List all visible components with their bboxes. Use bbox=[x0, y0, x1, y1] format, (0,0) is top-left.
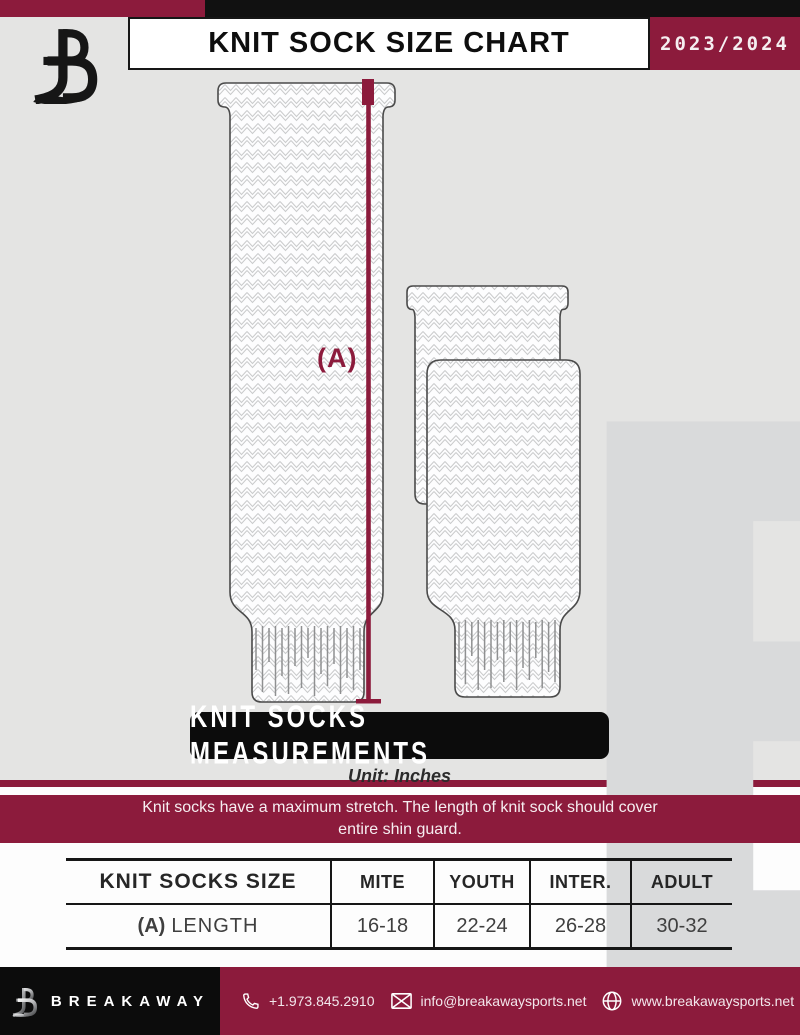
size-chart-page: KNIT SOCK SIZE CHART 2023/2024 B bbox=[0, 0, 800, 1035]
season-badge: 2023/2024 bbox=[650, 17, 800, 70]
length-value-youth: 22-24 bbox=[433, 905, 529, 947]
breakaway-logo-icon bbox=[26, 22, 106, 104]
size-table-header-adult: ADULT bbox=[630, 861, 732, 903]
top-accent-strip-black bbox=[205, 0, 800, 17]
length-row-name: LENGTH bbox=[171, 915, 258, 938]
sock-diagram: (A) bbox=[170, 70, 610, 715]
sock-front-intermediate bbox=[427, 360, 580, 697]
length-value-adult: 30-32 bbox=[630, 905, 732, 947]
phone-icon bbox=[240, 991, 261, 1012]
length-label-a: (A) bbox=[317, 343, 357, 373]
size-table-header-row: KNIT SOCKS SIZE MITE YOUTH INTER. ADULT bbox=[66, 861, 732, 905]
footer-email-address: info@breakawaysports.net bbox=[421, 993, 587, 1009]
page-title: KNIT SOCK SIZE CHART bbox=[208, 27, 570, 60]
size-table-length-row: (A) LENGTH 16-18 22-24 26-28 30-32 bbox=[66, 905, 732, 947]
length-row-label: (A) LENGTH bbox=[66, 905, 330, 947]
season-label: 2023/2024 bbox=[660, 33, 790, 55]
footer-contact-bar: +1.973.845.2910 info@breakawaysports.net… bbox=[220, 967, 800, 1035]
footer-phone: +1.973.845.2910 bbox=[240, 991, 375, 1012]
envelope-icon bbox=[390, 991, 413, 1011]
size-table-header-mite: MITE bbox=[330, 861, 433, 903]
size-table-header-youth: YOUTH bbox=[433, 861, 529, 903]
breakaway-footer-logo-icon bbox=[10, 984, 40, 1018]
footer-website: www.breakawaysports.net bbox=[601, 990, 794, 1012]
stretch-notice-line2: entire shin guard. bbox=[338, 819, 462, 841]
stretch-notice-band: Knit socks have a maximum stretch. The l… bbox=[0, 795, 800, 843]
footer: BREAKAWAY +1.973.845.2910 info@breakaway… bbox=[0, 967, 800, 1035]
footer-phone-number: +1.973.845.2910 bbox=[269, 993, 375, 1009]
top-accent-strip-maroon bbox=[0, 0, 205, 17]
footer-brand-name: BREAKAWAY bbox=[51, 993, 210, 1010]
footer-website-url: www.breakawaysports.net bbox=[631, 993, 794, 1009]
length-value-mite: 16-18 bbox=[330, 905, 433, 947]
measurements-banner: KNIT SOCKS MEASUREMENTS bbox=[190, 712, 609, 759]
measurements-banner-label: KNIT SOCKS MEASUREMENTS bbox=[190, 699, 609, 773]
size-table-header-inter: INTER. bbox=[529, 861, 630, 903]
globe-icon bbox=[601, 990, 623, 1012]
size-table-header-name: KNIT SOCKS SIZE bbox=[66, 861, 330, 903]
footer-brand-block: BREAKAWAY bbox=[0, 967, 220, 1035]
footer-email: info@breakawaysports.net bbox=[390, 991, 587, 1011]
page-title-box: KNIT SOCK SIZE CHART bbox=[128, 17, 650, 70]
length-row-prefix: (A) bbox=[138, 915, 166, 938]
unit-note: Unit: Inches bbox=[190, 766, 609, 787]
length-value-inter: 26-28 bbox=[529, 905, 630, 947]
size-table: KNIT SOCKS SIZE MITE YOUTH INTER. ADULT … bbox=[66, 858, 732, 950]
stretch-notice-line1: Knit socks have a maximum stretch. The l… bbox=[142, 797, 658, 819]
